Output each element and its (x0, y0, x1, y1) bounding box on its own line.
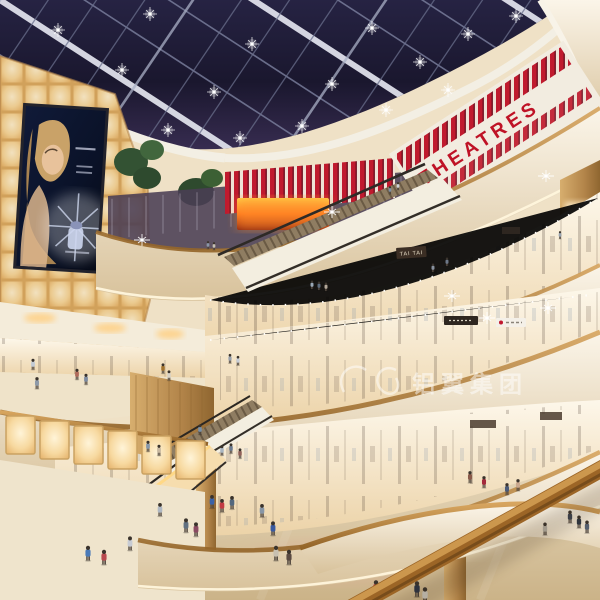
backlit-panel (176, 441, 205, 479)
shop-sign (502, 227, 520, 234)
scene-canvas: THEATRES TAI TAI (0, 0, 600, 600)
mall-atrium-rendering: THEATRES TAI TAI (0, 0, 600, 600)
backlit-panel (74, 426, 103, 464)
backlit-panel (142, 436, 171, 474)
shop-logo-mark (499, 321, 503, 325)
shop-sign (540, 412, 562, 420)
watermark-text: 铝翼集团 (412, 371, 528, 397)
backlit-panel (40, 421, 69, 459)
backlit-panel (6, 416, 35, 454)
shop-sign (470, 420, 496, 428)
backlit-panel (108, 431, 137, 469)
tai-tai-sign: TAI TAI (396, 246, 427, 259)
perfume-bottle (67, 227, 83, 250)
